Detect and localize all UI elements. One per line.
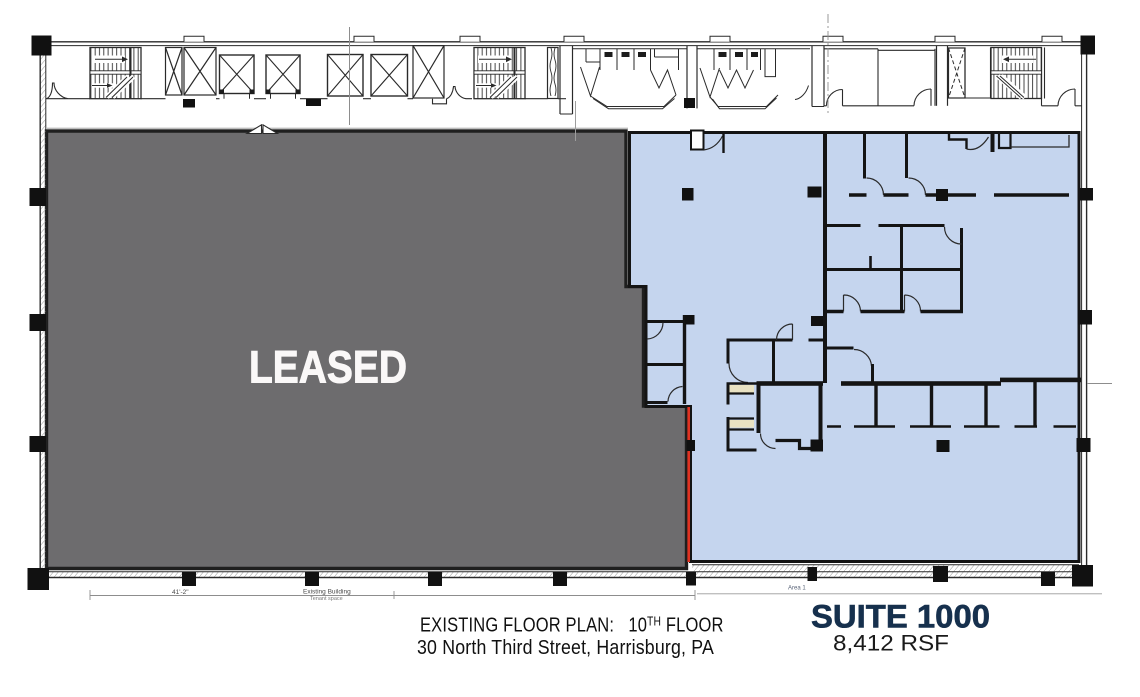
svg-text:EXISTING FLOOR PLAN: 10TH FL: EXISTING FLOOR PLAN: 10TH FLOOR	[420, 613, 724, 636]
svg-text:Tenant space: Tenant space	[310, 596, 343, 602]
svg-text:30 North Third Street, Harrisb: 30 North Third Street, Harrisburg, PA	[417, 637, 714, 659]
svg-text:SUITE 1000: SUITE 1000	[811, 599, 990, 635]
svg-text:LEASED: LEASED	[249, 342, 407, 393]
svg-text:8,412 RSF: 8,412 RSF	[833, 631, 949, 656]
svg-text:41'-2": 41'-2"	[172, 589, 189, 596]
svg-text:Existing Building: Existing Building	[303, 589, 351, 596]
svg-text:Area 1: Area 1	[788, 586, 806, 592]
